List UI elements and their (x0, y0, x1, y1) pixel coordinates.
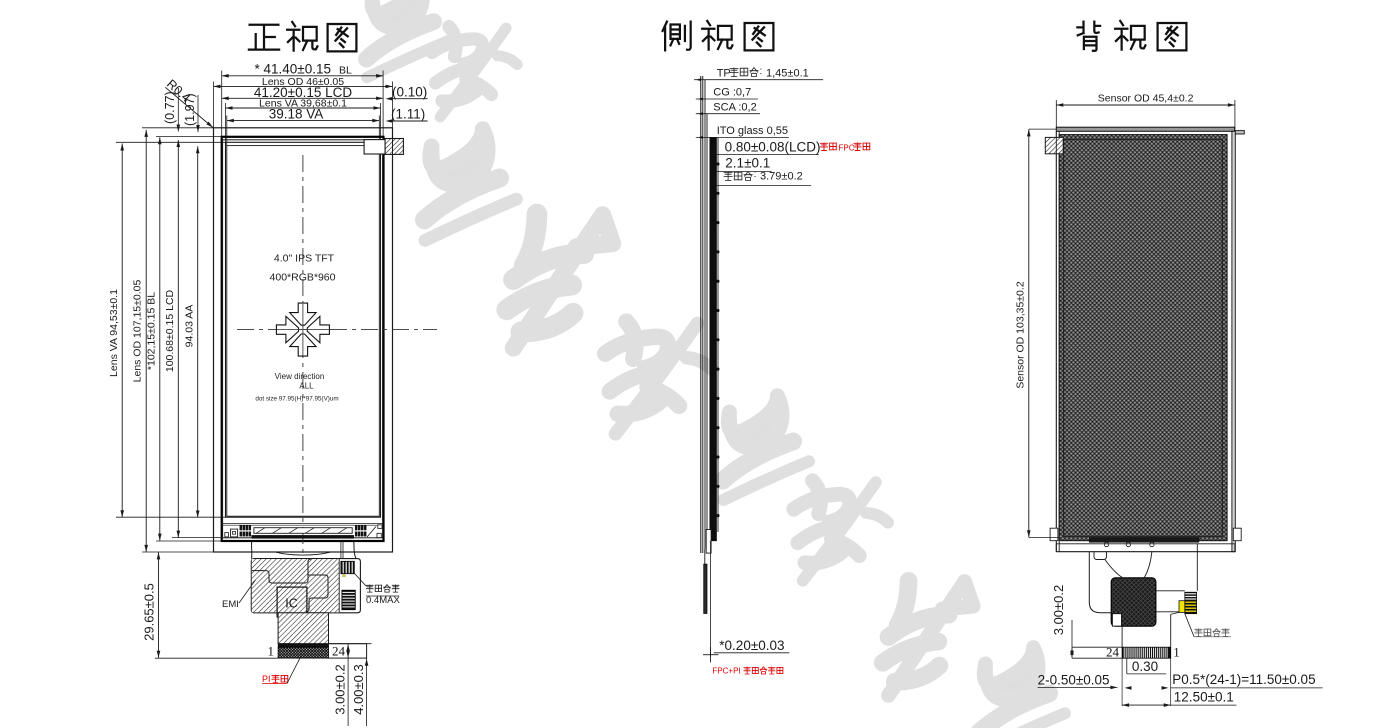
svg-text:EMI: EMI (222, 599, 239, 610)
svg-text:Lens OD 107,15±0.05: Lens OD 107,15±0.05 (132, 280, 144, 383)
svg-text:0.80±0.08(LCD): 0.80±0.08(LCD) (725, 140, 821, 155)
svg-text:400*RGB*960: 400*RGB*960 (270, 272, 336, 284)
svg-text:FPC: FPC (839, 144, 855, 153)
svg-text:BL: BL (339, 65, 352, 77)
svg-text:2-0.50±0.05: 2-0.50±0.05 (1038, 673, 1110, 688)
svg-text:3.79±0.2: 3.79±0.2 (760, 171, 803, 183)
svg-text:100.68±0.15 LCD: 100.68±0.15 LCD (164, 289, 176, 372)
svg-text:View direction: View direction (275, 372, 325, 381)
svg-text::: : (760, 66, 763, 77)
svg-text:dot size 97.95(H)*97.95(V)um: dot size 97.95(H)*97.95(V)um (255, 396, 338, 403)
svg-text:ALL: ALL (299, 382, 314, 391)
svg-text:94.03 AA: 94.03 AA (184, 305, 196, 348)
svg-text:24: 24 (1106, 645, 1120, 660)
svg-text:IC: IC (285, 597, 298, 611)
svg-text:Lens VA 94,53±0.1: Lens VA 94,53±0.1 (108, 289, 120, 377)
svg-text:Sensor OD 103,35±0.2: Sensor OD 103,35±0.2 (1015, 281, 1027, 388)
svg-text:PI: PI (262, 674, 271, 684)
svg-text:0.30: 0.30 (1132, 659, 1158, 674)
svg-text:3.00±0.2: 3.00±0.2 (333, 664, 348, 715)
svg-text:3.00±0.2: 3.00±0.2 (1051, 585, 1066, 636)
svg-text:39.18 VA: 39.18 VA (269, 107, 324, 122)
svg-text:* 41.40±0.15: * 41.40±0.15 (255, 62, 331, 77)
svg-text:(1.11): (1.11) (391, 107, 425, 122)
svg-text:CG :0,7: CG :0,7 (713, 87, 751, 99)
svg-text:*0.20±0.03: *0.20±0.03 (719, 638, 784, 653)
svg-text:1: 1 (1173, 645, 1180, 660)
svg-text:12.50±0.1: 12.50±0.1 (1174, 690, 1234, 705)
svg-text:1: 1 (268, 644, 275, 659)
svg-text:SCA :0,2: SCA :0,2 (713, 101, 756, 113)
svg-text:1,45±0.1: 1,45±0.1 (766, 68, 809, 80)
svg-text::: : (754, 169, 757, 180)
svg-text:4.00±0.3: 4.00±0.3 (351, 664, 366, 715)
svg-text:P0.5*(24-1)=11.50±0.05: P0.5*(24-1)=11.50±0.05 (1172, 672, 1315, 687)
svg-text:FPC+PI: FPC+PI (712, 667, 740, 676)
svg-text:29.65±0.5: 29.65±0.5 (142, 583, 157, 641)
svg-text:*102,15±0.15 BL: *102,15±0.15 BL (146, 292, 158, 370)
svg-text:TP: TP (717, 68, 731, 80)
svg-text:(0.10): (0.10) (392, 85, 427, 100)
svg-text:Sensor OD 45,4±0.2: Sensor OD 45,4±0.2 (1098, 93, 1194, 105)
svg-text:0.4MAX: 0.4MAX (366, 595, 400, 606)
svg-text:24: 24 (332, 644, 346, 659)
svg-text:2.1±0.1: 2.1±0.1 (725, 156, 770, 171)
svg-text:4.0" IPS TFT: 4.0" IPS TFT (274, 253, 335, 265)
svg-text:ITO glass 0,55: ITO glass 0,55 (717, 125, 788, 137)
